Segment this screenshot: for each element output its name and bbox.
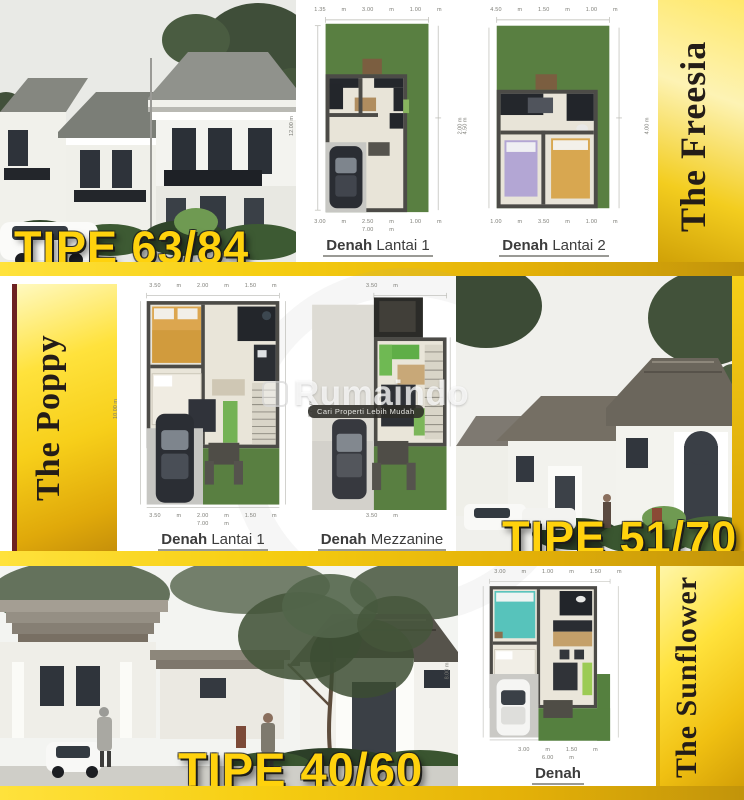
wardrobe (329, 84, 343, 109)
freesia-series-name: The Freesia (672, 10, 732, 262)
pillar-left (205, 461, 214, 485)
dim-total: 6.00 m (542, 754, 574, 762)
plan-label-text: Lantai 1 (376, 237, 429, 254)
plan-label-bold: Denah (161, 531, 207, 548)
poppy-series-name: The Poppy (30, 292, 94, 544)
plan-label-bold: Denah (326, 237, 372, 254)
doormat (362, 59, 381, 75)
dark-table (553, 663, 577, 691)
rumaindo-logo-icon (262, 381, 288, 407)
car (156, 414, 194, 503)
house-left (0, 600, 168, 738)
planter (403, 99, 409, 113)
plan-label-text: Lantai 2 (552, 237, 605, 254)
dim-bottom: 1.00 m 3.50 m 1.00 m (490, 218, 618, 226)
wall-divider-2 (541, 131, 545, 205)
closet (528, 98, 553, 114)
yellow-bar-3 (0, 786, 744, 800)
poppy-plan-lantai-1: 3.50 m 2.00 m 1.50 m (122, 282, 304, 552)
car (332, 419, 367, 499)
bathroom (390, 113, 404, 129)
pillar-right (234, 461, 243, 485)
wall-divider (501, 131, 594, 135)
dim-left: 8.00 m (444, 663, 450, 680)
green-bench (223, 401, 238, 443)
sunflower-denah-drawing (460, 578, 656, 744)
dim-top: 3.00 m 1.00 m 1.50 m (494, 568, 622, 576)
sunflower-series-name: The Sunflower (670, 572, 732, 782)
bathroom (560, 591, 593, 615)
sunflower-plan-denah: 3.00 m 1.00 m 1.50 m (455, 568, 661, 786)
roof-opening (373, 297, 422, 337)
dim-left: 12.00 m (289, 116, 295, 136)
dim-bottom: 3.50 m (366, 512, 398, 520)
dim-left: 2.00 m (457, 117, 463, 134)
porch (543, 700, 572, 718)
watermark: Rumaindo Cari Properti Lebih Mudah (262, 374, 492, 414)
dim-top: 1.35 m 3.00 m 1.00 m (314, 6, 442, 14)
plan-label: Denah Mezzanine (318, 531, 447, 551)
plan-label-bold: Denah (321, 531, 367, 548)
plan-label: Denah Lantai 1 (158, 531, 267, 551)
dim-top: 3.50 m (366, 282, 398, 290)
dim-total: 7.00 m (197, 520, 229, 528)
plan-label: Denah (532, 765, 584, 785)
dim-bottom: 3.00 m 2.50 m 1.00 m (314, 218, 442, 226)
dim-top: 3.50 m 2.00 m 1.50 m (149, 282, 277, 290)
wall-divider (150, 365, 203, 369)
plan-label-bold: Denah (535, 765, 581, 782)
plan-label-text: Lantai 1 (211, 531, 264, 548)
bed-orange (152, 307, 201, 363)
dining-table (355, 98, 376, 112)
doormat (536, 74, 557, 90)
freesia-plan-lantai-2: 4.50 m 1.50 m 1.00 m (468, 6, 640, 260)
dim-total: 7.00 m (362, 226, 394, 234)
flyer-canvas: 1.35 m 3.00 m 1.00 m (0, 0, 744, 800)
wall-divider (493, 641, 537, 644)
house-front (148, 52, 296, 240)
wall-divider (329, 113, 378, 117)
dim-left: 10.00 m (113, 399, 119, 419)
porch (368, 142, 389, 156)
lamp-post (150, 58, 152, 230)
freesia-lantai1-drawing (310, 16, 446, 216)
watermark-tagline: Cari Properti Lebih Mudah (308, 405, 424, 418)
bed-teal (495, 591, 536, 638)
dim-bottom: 3.00 m 1.50 m (518, 746, 598, 754)
dim-top: 4.50 m 1.50 m 1.00 m (490, 6, 618, 14)
car (329, 146, 362, 208)
plan-label: Denah Lantai 2 (499, 237, 608, 257)
plan-label-text: Mezzanine (371, 531, 444, 548)
pillar-left (372, 463, 381, 490)
dim-bottom: 3.50 m 2.00 m 1.50 m (149, 512, 277, 520)
bed-orange (551, 138, 590, 198)
bed-purple (504, 140, 537, 196)
freesia-lantai2-drawing (479, 16, 629, 216)
green-cabinet (582, 663, 592, 696)
poppy-house-render (456, 276, 734, 552)
pillar-right (406, 463, 415, 490)
bathroom (238, 307, 276, 342)
plan-label: Denah Lantai 1 (323, 237, 432, 257)
poppy-right-strip (732, 276, 744, 551)
freesia-plan-lantai-1: 1.35 m 3.00 m 1.00 m (298, 6, 458, 260)
white-car (496, 679, 530, 736)
dim-right: 4.00 m (645, 117, 651, 134)
rug (212, 379, 245, 395)
porch (377, 441, 408, 465)
yellow-bar-2 (0, 551, 744, 566)
plan-label-bold: Denah (502, 237, 548, 254)
wall-divider-2 (359, 78, 363, 117)
